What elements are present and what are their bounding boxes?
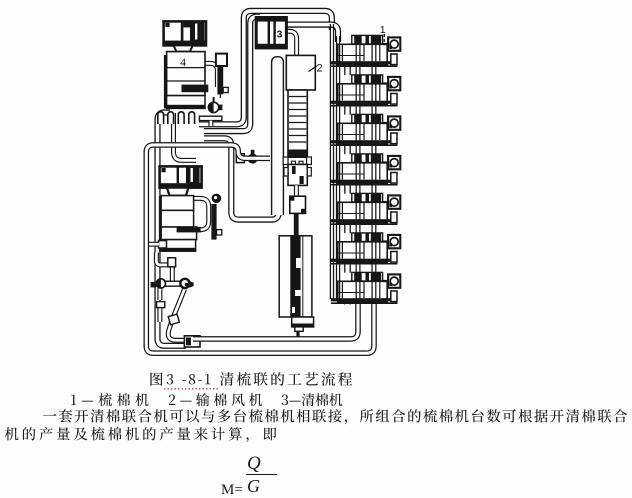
svg-text:4: 4: [180, 57, 186, 69]
svg-text:3: 3: [277, 30, 283, 41]
svg-text:2: 2: [317, 63, 323, 75]
